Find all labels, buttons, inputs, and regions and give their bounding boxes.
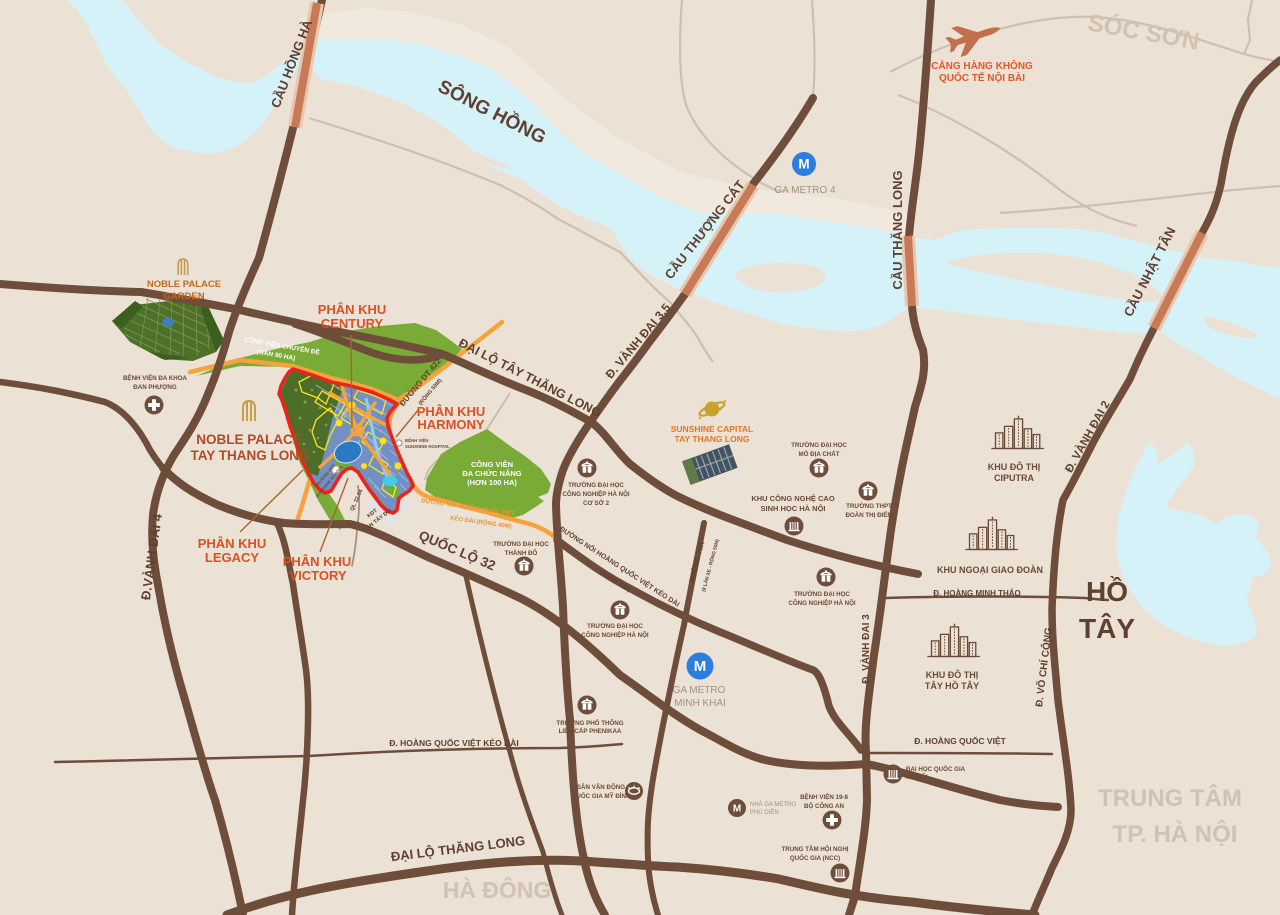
svg-text:M: M: [694, 658, 707, 675]
svg-text:NHÀ GA METRO: NHÀ GA METRO: [750, 801, 796, 808]
svg-text:ĐAN PHƯỢNG: ĐAN PHƯỢNG: [133, 384, 177, 391]
svg-text:ĐA CHỨC NĂNG: ĐA CHỨC NĂNG: [462, 469, 521, 478]
svg-text:CÔNG NGHIỆP HÀ NỘI: CÔNG NGHIỆP HÀ NỘI: [788, 599, 856, 607]
svg-text:Đ. HOÀNG MINH THẢO: Đ. HOÀNG MINH THẢO: [933, 589, 1021, 598]
svg-text:PHÂN KHU: PHÂN KHU: [198, 536, 267, 551]
svg-text:TRƯỜNG ĐẠI HỌC: TRƯỜNG ĐẠI HỌC: [568, 481, 624, 489]
svg-text:CÔNG NGHIỆP HÀ NỘI: CÔNG NGHIỆP HÀ NỘI: [562, 490, 630, 498]
svg-text:TAY THANG LONG: TAY THANG LONG: [190, 448, 309, 463]
svg-text:SUNSHINE CAPITAL: SUNSHINE CAPITAL: [671, 424, 754, 434]
svg-text:CÔNG VIÊN: CÔNG VIÊN: [471, 460, 513, 469]
svg-text:SINH HỌC HÀ NỘI: SINH HỌC HÀ NỘI: [760, 504, 825, 513]
svg-text:ĐOÀN THỊ ĐIỂM: ĐOÀN THỊ ĐIỂM: [845, 512, 892, 519]
svg-text:NOBLE PALACE: NOBLE PALACE: [196, 432, 302, 447]
svg-text:Đ. HOÀNG QUỐC VIỆT KÉO DÀI: Đ. HOÀNG QUỐC VIỆT KÉO DÀI: [389, 737, 518, 748]
svg-text:Đ. HOÀNG QUỐC VIỆT: Đ. HOÀNG QUỐC VIỆT: [914, 735, 1006, 746]
svg-text:TRUNG TÂM HỘI NGHỊ: TRUNG TÂM HỘI NGHỊ: [781, 845, 848, 853]
svg-text:(HƠN 100 HA): (HƠN 100 HA): [467, 478, 517, 487]
svg-text:QUỐC TẾ NỘI BÀI: QUỐC TẾ NỘI BÀI: [939, 70, 1025, 84]
svg-text:TAY THANG LONG: TAY THANG LONG: [675, 434, 750, 444]
svg-text:TRƯỜNG PHỔ THÔNG: TRƯỜNG PHỔ THÔNG: [556, 719, 623, 727]
svg-text:BỆNH VIỆN ĐA KHOA: BỆNH VIỆN ĐA KHOA: [123, 374, 188, 382]
svg-text:TRƯỜNG ĐẠI HỌC: TRƯỜNG ĐẠI HỌC: [493, 540, 549, 548]
svg-text:TRƯỜNG ĐẠI HỌC: TRƯỜNG ĐẠI HỌC: [791, 441, 847, 449]
svg-text:TÂY: TÂY: [1079, 613, 1135, 644]
svg-text:CẢNG HÀNG KHÔNG: CẢNG HÀNG KHÔNG: [931, 59, 1033, 72]
svg-text:VICTORY: VICTORY: [289, 568, 346, 583]
svg-text:HARMONY: HARMONY: [417, 417, 484, 432]
svg-text:LEGACY: LEGACY: [205, 550, 260, 565]
svg-text:PHÂN KHU: PHÂN KHU: [318, 302, 387, 317]
svg-text:LIÊN CẤP PHENIKAA: LIÊN CẤP PHENIKAA: [559, 727, 622, 735]
svg-text:GARDEN: GARDEN: [163, 291, 204, 302]
svg-text:CENTURY: CENTURY: [321, 316, 384, 331]
svg-text:TRƯỜNG ĐẠI HỌC: TRƯỜNG ĐẠI HỌC: [794, 590, 850, 598]
svg-text:PHÂN KHU: PHÂN KHU: [283, 554, 352, 569]
svg-text:M: M: [733, 804, 741, 815]
svg-text:QUỐC GIA (NCC): QUỐC GIA (NCC): [790, 855, 840, 862]
svg-text:CIPUTRA: CIPUTRA: [994, 473, 1034, 483]
svg-text:PHÚ DIỄN: PHÚ DIỄN: [750, 809, 779, 816]
svg-text:MINH KHAI: MINH KHAI: [674, 698, 726, 709]
svg-text:KHU CÔNG NGHỆ CAO: KHU CÔNG NGHỆ CAO: [751, 494, 835, 503]
svg-text:TRƯỜNG ĐẠI HỌC: TRƯỜNG ĐẠI HỌC: [587, 622, 643, 630]
svg-text:BỘ CÔNG AN: BỘ CÔNG AN: [804, 802, 845, 810]
svg-text:HÀ NỘI: HÀ NỘI: [906, 773, 928, 781]
svg-text:M: M: [798, 157, 809, 172]
svg-text:TP. HÀ NỘI: TP. HÀ NỘI: [1113, 820, 1238, 848]
svg-text:CẦU THĂNG LONG: CẦU THĂNG LONG: [890, 170, 905, 289]
svg-text:CƠ SỞ 2: CƠ SỞ 2: [583, 500, 610, 507]
svg-text:GA METRO: GA METRO: [673, 685, 726, 696]
svg-text:SÂN VẬN ĐỘNG: SÂN VẬN ĐỘNG: [577, 783, 625, 791]
svg-text:CÔNG NGHIỆP HÀ NỘI: CÔNG NGHIỆP HÀ NỘI: [581, 631, 649, 639]
svg-text:QUỐC GIA MỸ ĐÌNH: QUỐC GIA MỸ ĐÌNH: [572, 792, 631, 800]
svg-text:KHU NGOẠI GIAO ĐOÀN: KHU NGOẠI GIAO ĐOÀN: [937, 565, 1043, 575]
svg-text:HỒ: HỒ: [1086, 576, 1128, 607]
svg-text:TRUNG TÂM: TRUNG TÂM: [1098, 784, 1242, 812]
svg-text:Đ. VÀNH ĐAI 3: Đ. VÀNH ĐAI 3: [859, 614, 872, 684]
svg-text:MỎ ĐỊA CHẤT: MỎ ĐỊA CHẤT: [798, 451, 839, 458]
svg-text:ĐẠI HỌC QUỐC GIA: ĐẠI HỌC QUỐC GIA: [906, 766, 966, 773]
svg-text:HÀ ĐÔNG: HÀ ĐÔNG: [443, 876, 552, 903]
svg-text:TÂY HỒ TÂY: TÂY HỒ TÂY: [925, 680, 979, 691]
svg-text:TRƯỜNG THPT: TRƯỜNG THPT: [846, 502, 892, 510]
svg-text:BỆNH VIỆN 19-8: BỆNH VIỆN 19-8: [800, 793, 848, 801]
svg-text:NOBLE PALACE: NOBLE PALACE: [147, 279, 221, 290]
svg-text:GA METRO 4: GA METRO 4: [774, 185, 836, 196]
svg-text:THÀNH ĐÔ: THÀNH ĐÔ: [505, 549, 538, 557]
svg-text:SUNSHINE HOSPITAL: SUNSHINE HOSPITAL: [405, 444, 450, 449]
svg-text:KHU ĐÔ THỊ: KHU ĐÔ THỊ: [988, 461, 1041, 472]
svg-text:BỆNH VIỆN: BỆNH VIỆN: [405, 438, 428, 443]
svg-text:KHU ĐÔ THỊ: KHU ĐÔ THỊ: [926, 669, 979, 680]
